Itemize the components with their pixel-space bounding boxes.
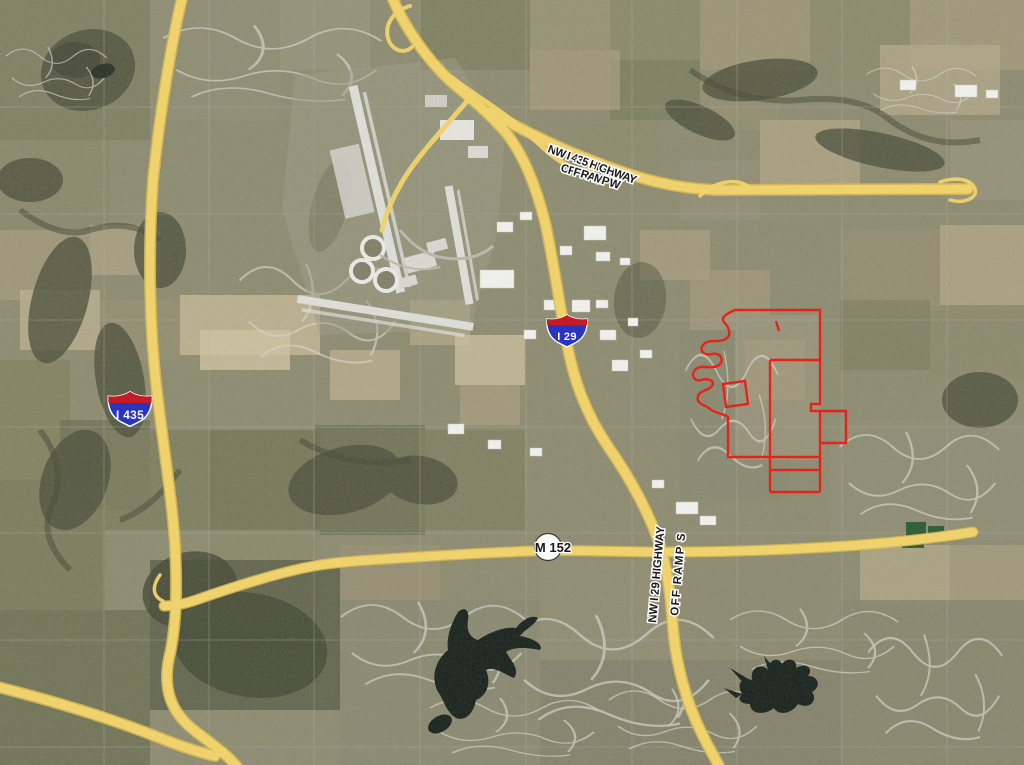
map-canvas: I 435 I 29 M 152 NW I 435 HIGHWAY OFF RA… bbox=[0, 0, 1024, 765]
satellite-map[interactable]: I 435 I 29 M 152 NW I 435 HIGHWAY OFF RA… bbox=[0, 0, 1024, 765]
image-grain-overlay bbox=[0, 0, 1024, 765]
